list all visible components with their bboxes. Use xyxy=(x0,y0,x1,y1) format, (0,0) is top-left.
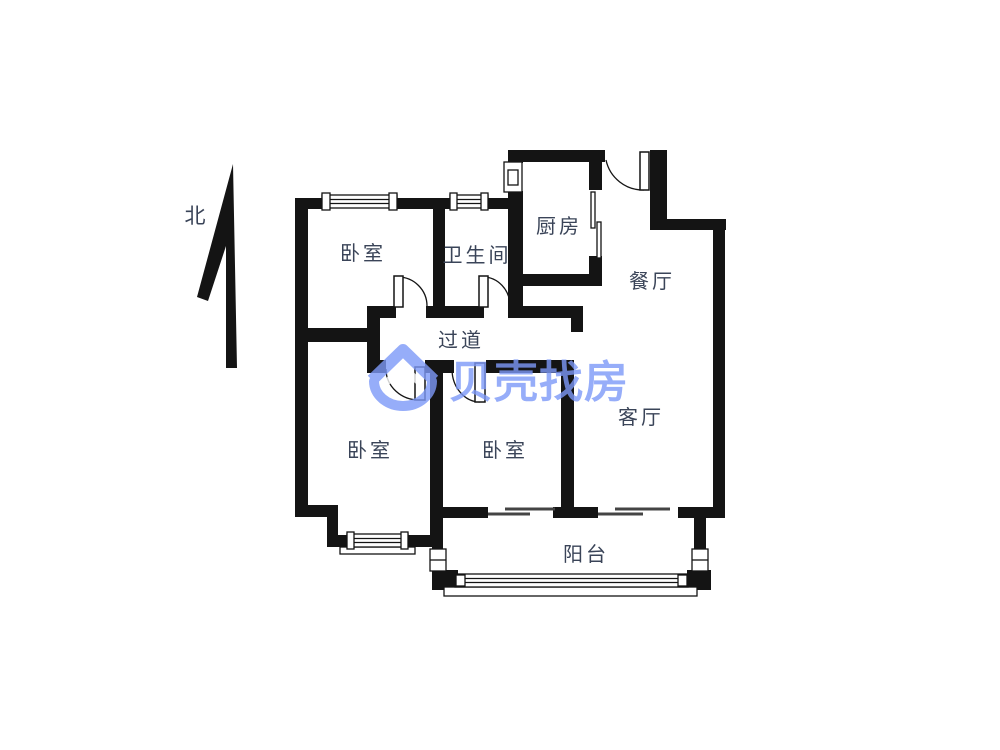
window-kitchen xyxy=(504,162,522,192)
bay-window-bedroom-southwest xyxy=(340,532,415,554)
window-bathroom xyxy=(450,193,488,210)
window-balcony-right xyxy=(692,549,708,571)
room-label-bathroom: 卫生间 xyxy=(443,244,512,267)
door-entry xyxy=(606,152,649,190)
room-label-bedroom-north: 卧室 xyxy=(340,242,386,265)
compass: 北 xyxy=(185,164,238,368)
room-label-living-room: 客厅 xyxy=(618,406,664,429)
room-label-hallway: 过道 xyxy=(438,329,484,352)
sliding-door-kitchen xyxy=(591,192,601,258)
watermark-text: 贝壳找房 xyxy=(449,358,629,407)
room-label-balcony: 阳台 xyxy=(563,543,609,566)
room-label-bedroom-south: 卧室 xyxy=(482,439,528,462)
beike-house-logo-icon xyxy=(372,350,434,406)
sliding-door-bedroom-south xyxy=(488,508,555,516)
room-label-kitchen: 厨房 xyxy=(536,215,582,238)
sliding-door-living-room xyxy=(598,508,670,516)
door-bathroom xyxy=(479,276,510,307)
window-balcony-front xyxy=(444,574,697,596)
north-label: 北 xyxy=(185,204,206,228)
window-balcony-left xyxy=(430,549,446,571)
room-label-dining-room: 餐厅 xyxy=(629,270,675,293)
floor-plan-svg: 北 卧室 卫生间 厨房 餐厅 过道 卧室 卧室 客厅 阳台 贝壳找房 xyxy=(0,0,1000,750)
floor-plan-page: 北 卧室 卫生间 厨房 餐厅 过道 卧室 卧室 客厅 阳台 贝壳找房 xyxy=(0,0,1000,750)
window-bedroom-north xyxy=(322,193,397,210)
door-bedroom-north xyxy=(394,276,427,307)
room-label-bedroom-southwest: 卧室 xyxy=(347,439,393,462)
north-arrow-icon xyxy=(197,164,237,368)
